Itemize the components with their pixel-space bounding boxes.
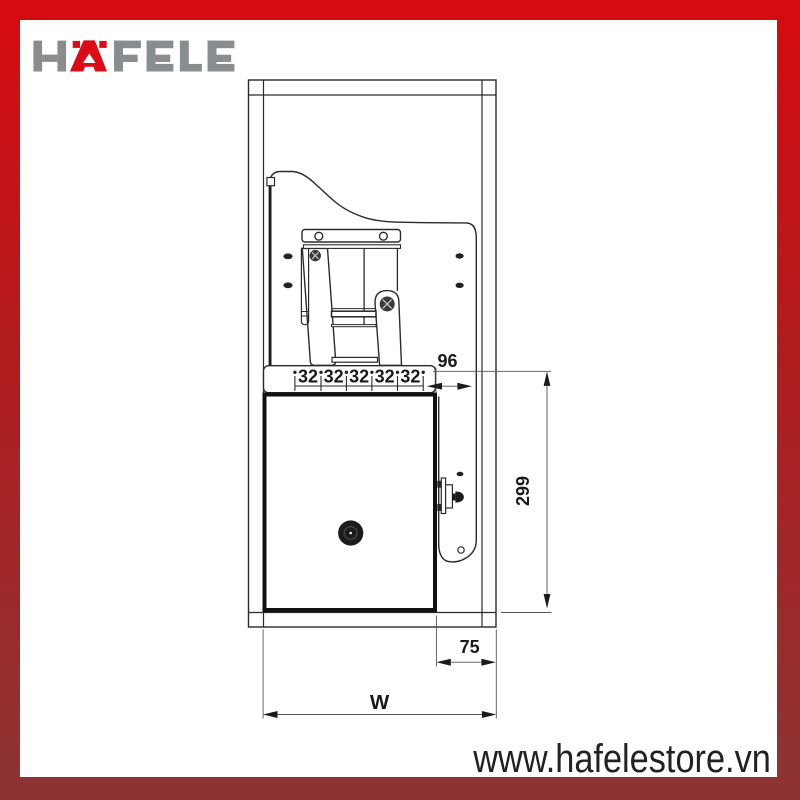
svg-text:32: 32 xyxy=(375,366,395,386)
svg-text:W: W xyxy=(370,691,390,714)
svg-text:32: 32 xyxy=(400,366,420,386)
svg-text:96: 96 xyxy=(437,351,457,371)
svg-text:75: 75 xyxy=(460,637,480,657)
svg-text:32: 32 xyxy=(349,366,369,386)
svg-text:32: 32 xyxy=(298,366,318,386)
svg-text:299: 299 xyxy=(513,476,533,506)
svg-text:32: 32 xyxy=(324,366,344,386)
